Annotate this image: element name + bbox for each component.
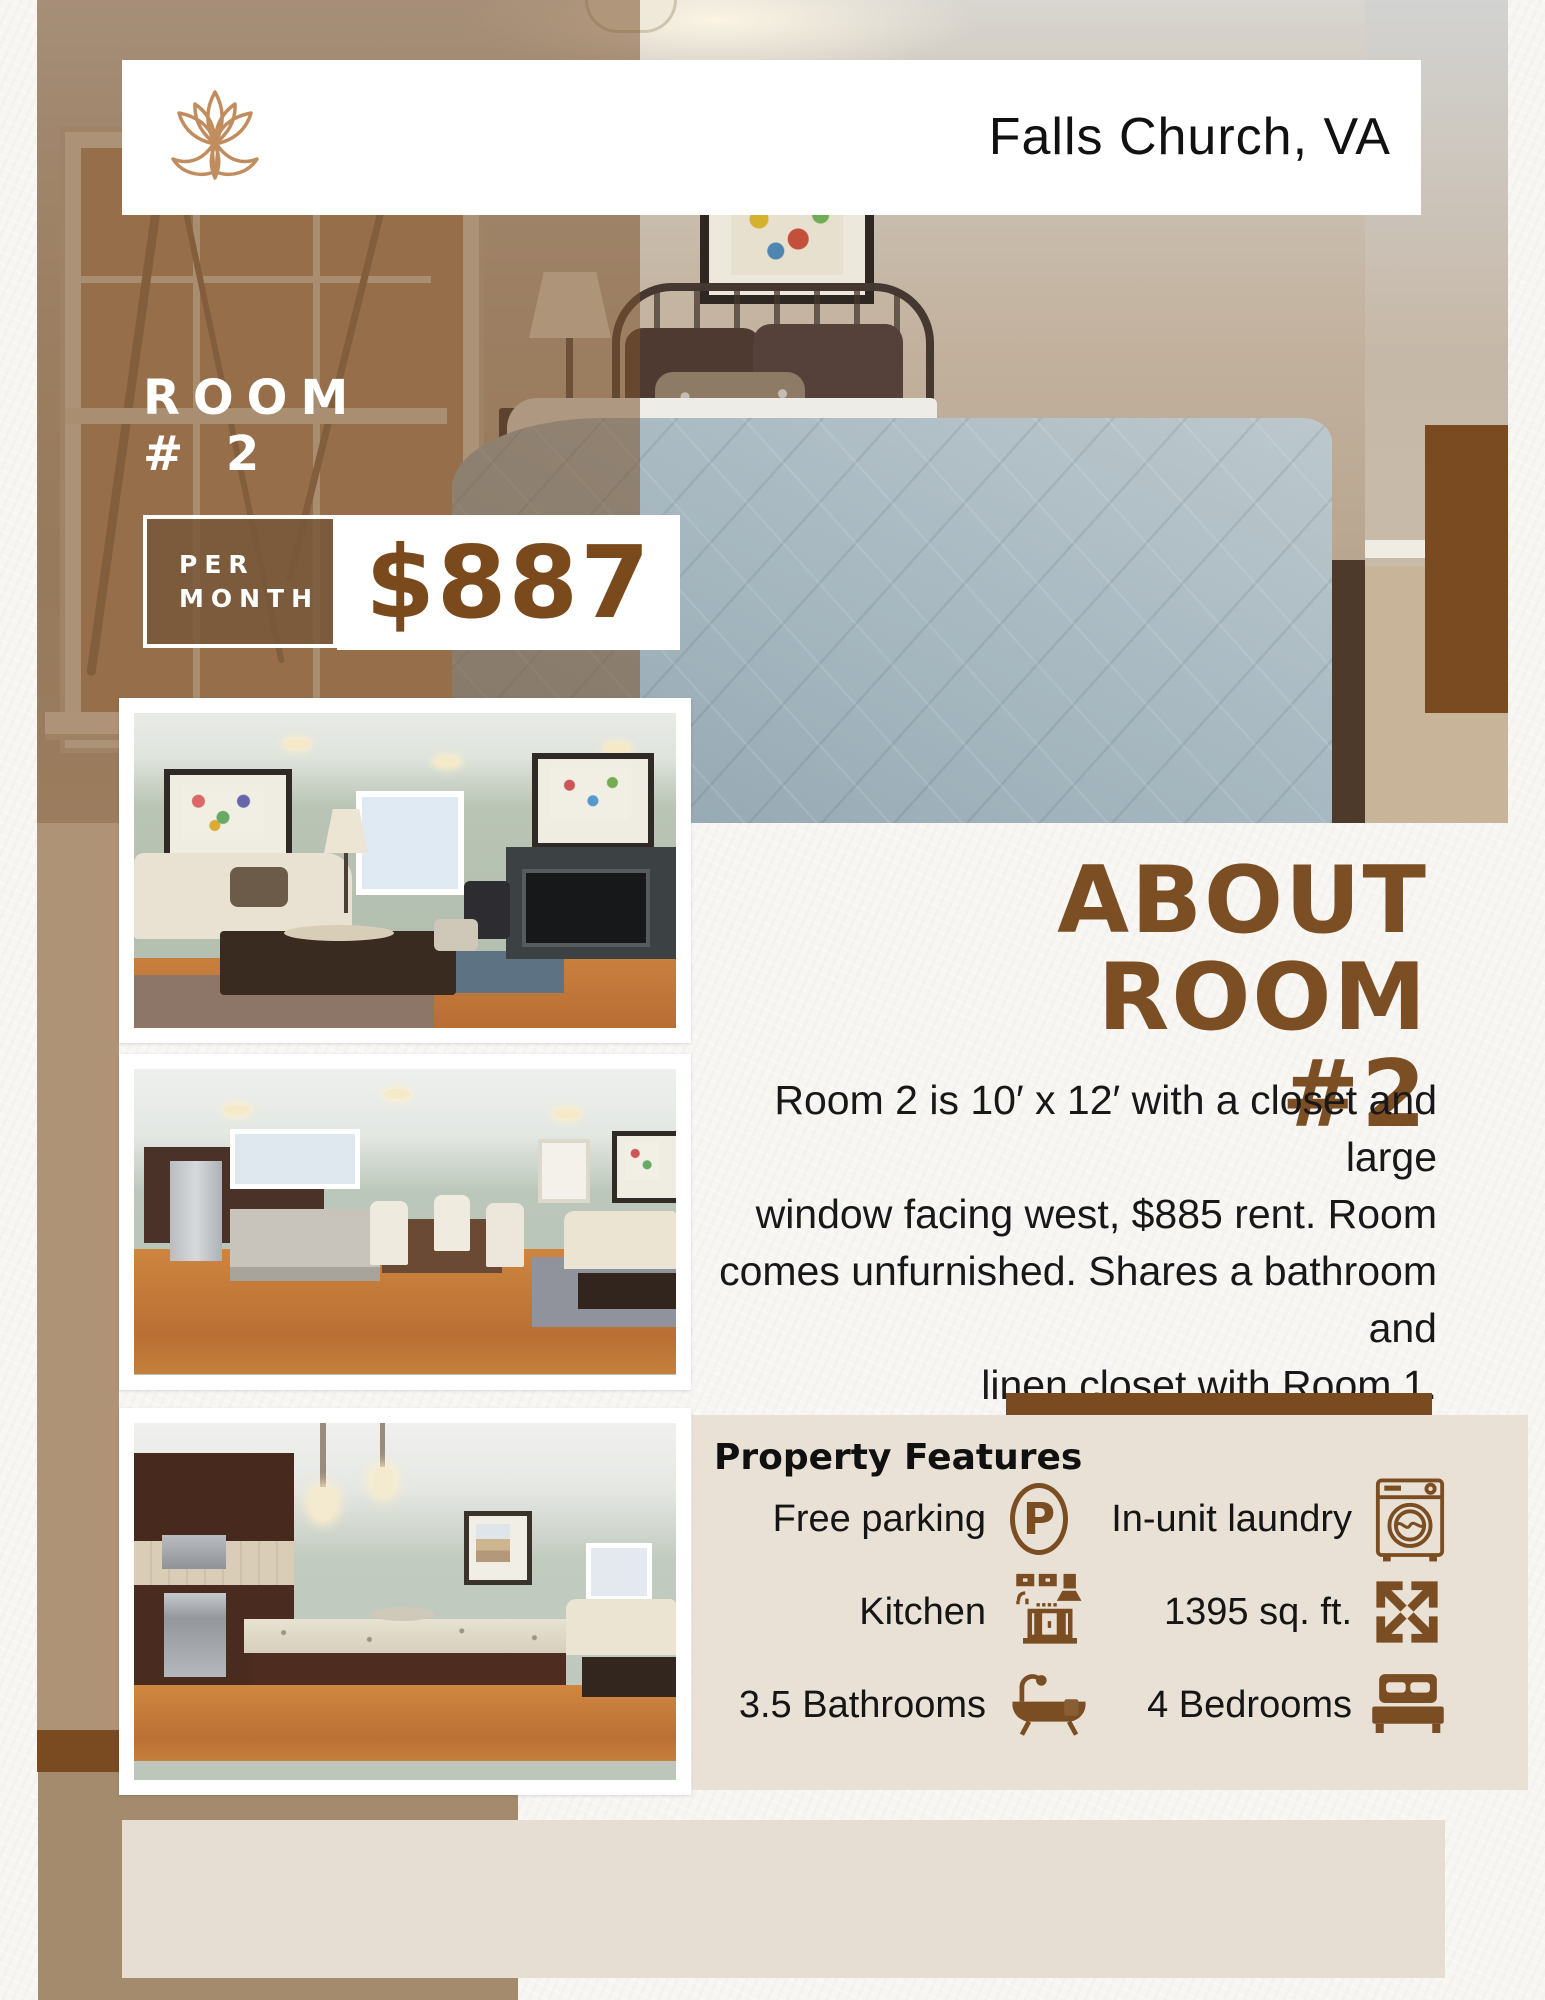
living-room-photo bbox=[134, 713, 676, 1028]
price-period-line2: MONTH bbox=[179, 582, 333, 616]
microwave bbox=[162, 1535, 226, 1569]
floor-lamp-pole bbox=[344, 853, 348, 913]
area-icon bbox=[1372, 1577, 1442, 1652]
about-description-line: Room 2 is 10′ x 12′ with a closet and la… bbox=[700, 1072, 1437, 1186]
art-frame bbox=[612, 1131, 676, 1203]
price-value-box: $887 bbox=[337, 515, 680, 650]
dining-chair bbox=[370, 1201, 408, 1265]
pendant-cord bbox=[320, 1423, 326, 1489]
room-number-title: ROOM # 2 bbox=[143, 370, 361, 482]
photo-card-dining-area bbox=[119, 1054, 691, 1390]
pendant-cord bbox=[380, 1423, 385, 1469]
sofa bbox=[566, 1599, 676, 1655]
about-description-line: comes unfurnished. Shares a bathroom and bbox=[700, 1243, 1437, 1357]
recessed-light bbox=[384, 1089, 410, 1099]
bed-icon bbox=[1368, 1673, 1448, 1738]
about-title-line1: ABOUT ROOM bbox=[700, 852, 1428, 1046]
table-tray bbox=[284, 925, 394, 941]
recessed-light bbox=[284, 739, 310, 749]
pendant-light bbox=[310, 1487, 336, 1521]
kitchen-window bbox=[230, 1129, 360, 1189]
island-counter bbox=[230, 1209, 380, 1281]
recessed-light bbox=[224, 1105, 250, 1115]
feature-label-laundry: In-unit laundry bbox=[1060, 1497, 1352, 1541]
room-title-line1: ROOM bbox=[143, 370, 361, 426]
room-title-line2: # 2 bbox=[143, 426, 361, 482]
photo-card-kitchen bbox=[119, 1408, 691, 1795]
recessed-light bbox=[604, 743, 630, 753]
header-bar: Falls Church, VA bbox=[122, 60, 1421, 215]
bathtub-icon bbox=[1010, 1671, 1088, 1742]
laundry-icon bbox=[1374, 1471, 1446, 1572]
upper-cabinets bbox=[134, 1453, 294, 1541]
feature-label-bedrooms: 4 Bedrooms bbox=[1140, 1683, 1352, 1727]
feature-label-sqft: 1395 sq. ft. bbox=[1140, 1590, 1352, 1634]
ottoman bbox=[434, 919, 478, 951]
art-frame bbox=[464, 1511, 532, 1585]
about-description-line: window facing west, $885 rent. Room bbox=[700, 1186, 1437, 1243]
parking-letter: P bbox=[1023, 1494, 1055, 1545]
feature-label-kitchen: Kitchen bbox=[700, 1590, 986, 1634]
pendant-light bbox=[372, 1467, 394, 1497]
art-dots bbox=[550, 767, 628, 819]
fireplace-surround bbox=[506, 847, 676, 959]
recessed-light bbox=[554, 1109, 580, 1119]
feature-label-bathrooms: 3.5 Bathrooms bbox=[700, 1683, 986, 1727]
sofa bbox=[564, 1211, 676, 1269]
coffee-table bbox=[578, 1273, 676, 1309]
kitchen-icon bbox=[1014, 1573, 1086, 1654]
price-period-box: PER MONTH bbox=[143, 515, 337, 648]
living-room-window bbox=[356, 791, 464, 895]
left-tan-strip bbox=[37, 823, 119, 1772]
price-period-line1: PER bbox=[179, 548, 333, 582]
art-landscape bbox=[476, 1524, 510, 1562]
art-frame-fireplace bbox=[532, 753, 654, 849]
firebox bbox=[522, 869, 650, 947]
dining-chair bbox=[434, 1195, 470, 1251]
dining-area-photo bbox=[134, 1069, 676, 1375]
recessed-light bbox=[434, 757, 460, 767]
oven bbox=[164, 1593, 226, 1677]
granite-island-top bbox=[244, 1619, 574, 1653]
dark-brown-block bbox=[37, 1730, 122, 1772]
wall-picture bbox=[538, 1139, 590, 1203]
location-text: Falls Church, VA bbox=[989, 60, 1391, 215]
sofa-pillow bbox=[230, 867, 288, 907]
feature-label-parking: Free parking bbox=[700, 1497, 986, 1541]
coffee-table bbox=[582, 1657, 676, 1697]
features-heading: Property Features bbox=[714, 1437, 1082, 1478]
brown-accent-rectangle bbox=[1425, 425, 1508, 713]
far-window bbox=[586, 1543, 652, 1601]
refrigerator bbox=[170, 1161, 222, 1261]
dining-chair bbox=[486, 1203, 524, 1267]
art-dots bbox=[625, 1142, 659, 1180]
about-description: Room 2 is 10′ x 12′ with a closet and la… bbox=[700, 1072, 1437, 1414]
price-value: $887 bbox=[365, 524, 651, 641]
features-accent-bar bbox=[1006, 1393, 1432, 1415]
property-features-panel: Property Features Free parking P In-unit… bbox=[692, 1415, 1528, 1790]
lotus-logo-icon bbox=[160, 86, 270, 190]
island-tray bbox=[370, 1607, 434, 1621]
kitchen-photo bbox=[134, 1423, 676, 1780]
art-dots bbox=[182, 785, 264, 839]
photo-card-living-room bbox=[119, 698, 691, 1043]
bottom-beige-rectangle bbox=[122, 1820, 1445, 1978]
